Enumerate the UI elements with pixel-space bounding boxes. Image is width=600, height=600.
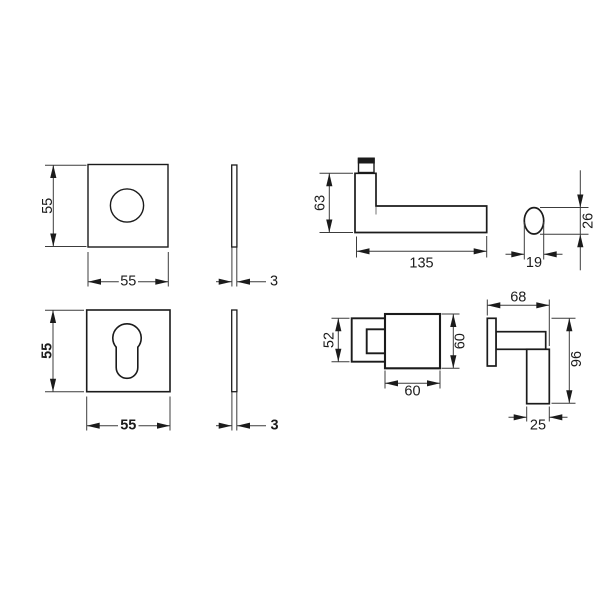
dim-label-escutcheon-height: 55 [40,343,56,359]
arrowhead-left [549,414,562,420]
arrowhead-right [514,414,527,420]
dim-label-rose-thickness: 3 [270,274,278,290]
dim-escutcheon-height: 55 [40,310,85,392]
dim-grip-width: 19 [506,222,563,271]
dim-lever-length: 135 [357,236,487,271]
arrowhead-down [577,195,583,208]
arrowhead-up [326,173,332,186]
drawing-svg: 55 55 3 [0,0,600,600]
arrowhead-right [219,423,232,429]
dim-label-grip-width: 19 [526,255,542,271]
rose-plate-outline [88,165,168,248]
arrowhead-right [511,251,524,257]
dim-label-grip-front-height: 60 [453,333,469,349]
dim-label-lever-length: 135 [409,255,433,271]
dim-neck-height: 52 [322,318,350,361]
arrowhead-up [566,318,572,331]
lever-side-view: 63 135 19 26 [313,158,597,272]
arrowhead-right [536,302,549,308]
dim-rose-width: 55 [88,252,168,290]
dim-rose-thickness: 3 [216,248,278,290]
dim-label-escutcheon-width: 55 [120,418,136,434]
arrowhead-down [450,355,456,368]
arrowhead-left [544,251,557,257]
arrowhead-right [427,380,440,386]
arrowhead-left [357,248,370,254]
dim-label-grip-height: 26 [580,213,596,229]
arrowhead-up [335,318,341,331]
arrowhead-up [450,314,456,327]
grip-front-outline [385,314,440,368]
dim-escutcheon-width: 55 [87,397,170,434]
arrowhead-up [50,310,56,323]
dim-label-grip-front-width: 60 [404,384,420,400]
arrowhead-down [50,234,56,247]
dim-grip-front-height: 60 [442,314,469,368]
dim-label-rose-width: 55 [120,274,136,290]
dim-grip-front-width: 60 [385,371,440,400]
dim-label-escutcheon-thickness: 3 [270,418,278,434]
dim-escutcheon-thickness: 3 [216,392,279,434]
arrowhead-down [326,220,332,233]
dim-label-rose-height: 55 [40,198,56,214]
dim-lever-height: 63 [313,173,354,232]
neck-top-outline [496,332,546,350]
arrowhead-left [385,380,398,386]
dim-depth: 96 [552,318,586,403]
dim-label-projection: 68 [510,290,526,306]
dim-grip-thickness: 25 [509,407,568,434]
dim-rose-height: 55 [40,165,87,247]
escutcheon-front-view: 55 55 [40,310,171,434]
rose-edge-outline [487,318,496,366]
dim-label-lever-height: 63 [313,195,329,211]
rose-side-view: 3 [216,165,278,290]
lever-handle-outline [355,173,487,232]
spindle-front-outline [367,329,385,353]
escutcheon-side-view: 3 [216,310,279,434]
spindle-knurled-cap [358,158,375,164]
arrowhead-down [335,349,341,362]
escutcheon-plate-outline [87,310,170,392]
grip-top-outline [527,349,550,403]
arrowhead-left [237,423,250,429]
rose-plate-edge [232,165,237,247]
dim-label-neck-height: 52 [322,332,338,348]
arrowhead-down [566,390,572,403]
grip-end-profile [524,208,543,234]
lever-front-view: 52 60 60 [322,314,469,400]
arrowhead-up [50,165,56,178]
arrowhead-right [157,423,170,429]
arrowhead-down [50,379,56,392]
dim-label-depth: 96 [569,351,585,367]
arrowhead-right [155,279,168,285]
rose-front-view: 55 55 [40,165,168,290]
technical-drawing-sheet: 55 55 3 [0,0,600,600]
arrowhead-up [577,234,583,247]
dim-label-grip-thickness: 25 [530,418,546,434]
arrowhead-left [487,302,500,308]
arrowhead-left [87,423,100,429]
lever-top-view: 68 96 25 [487,290,585,434]
arrowhead-right [474,248,487,254]
escutcheon-plate-edge [232,310,237,392]
arrowhead-left [88,279,101,285]
arrowhead-right [219,279,232,285]
arrowhead-left [237,279,250,285]
